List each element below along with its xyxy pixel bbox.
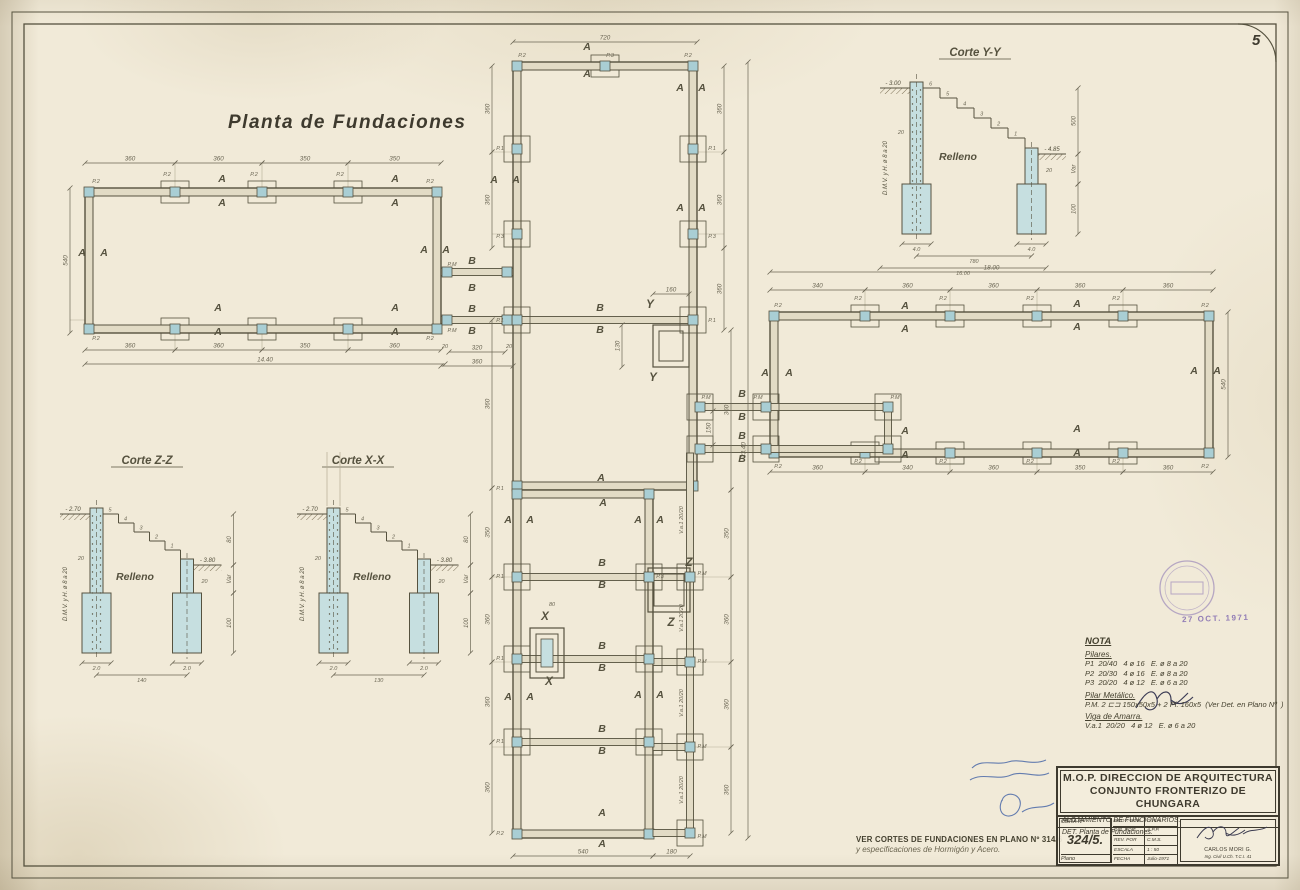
svg-text:360: 360 [724, 699, 731, 710]
svg-text:1: 1 [407, 544, 410, 550]
svg-text:B: B [468, 325, 476, 337]
credit-value: C.M.S. [1145, 838, 1177, 843]
svg-text:A: A [582, 68, 591, 80]
svg-text:4: 4 [124, 517, 127, 523]
svg-text:P.2: P.2 [426, 179, 434, 185]
svg-text:360: 360 [724, 404, 731, 415]
svg-text:P.2: P.2 [496, 831, 504, 837]
signer-title: Ing. Civil U.Ch. T.C.I. 41 [1181, 854, 1275, 859]
svg-text:160: 160 [666, 287, 677, 294]
svg-text:D.M.V. y H. ø 8 a 20: D.M.V. y H. ø 8 a 20 [883, 140, 889, 195]
svg-text:360: 360 [988, 465, 999, 472]
title-block-project: CONJUNTO FRONTERIZO DE CHUNGARA [1061, 785, 1275, 811]
signature-icon [1193, 822, 1273, 844]
svg-text:20: 20 [200, 579, 208, 585]
svg-text:1: 1 [170, 544, 173, 550]
svg-text:20: 20 [505, 344, 513, 350]
svg-text:P.M: P.M [701, 395, 710, 401]
obra-label: OBRA Nº [1061, 819, 1084, 825]
credit-value: Julio-1971 [1145, 857, 1177, 862]
svg-text:P.2: P.2 [939, 296, 947, 302]
svg-text:Y: Y [649, 372, 658, 384]
svg-text:360: 360 [1163, 465, 1174, 472]
svg-text:350: 350 [724, 528, 731, 539]
svg-text:P.M: P.M [697, 834, 706, 840]
svg-text:16.00: 16.00 [956, 271, 971, 277]
svg-text:360: 360 [485, 398, 492, 409]
svg-text:- 3.80: - 3.80 [437, 558, 453, 564]
credit-row: PROY. PORG.R.R. [1113, 817, 1177, 827]
svg-text:A: A [900, 323, 909, 335]
svg-text:P.M: P.M [753, 395, 762, 401]
svg-text:A: A [489, 174, 498, 186]
credit-row: DIB. PORA.P.P. [1113, 827, 1177, 837]
svg-text:350: 350 [300, 343, 311, 350]
svg-text:A: A [697, 82, 706, 94]
svg-text:20: 20 [897, 130, 905, 136]
svg-text:350: 350 [1075, 465, 1086, 472]
nota-group-title: Pilares. [1085, 650, 1295, 659]
credit-value: 1 : 50 [1145, 848, 1177, 853]
svg-text:P.2: P.2 [92, 179, 100, 185]
svg-text:360: 360 [125, 343, 136, 350]
svg-text:3: 3 [139, 526, 143, 532]
svg-text:P.1: P.1 [496, 739, 504, 745]
svg-text:P.3: P.3 [496, 234, 504, 240]
svg-text:V.a.1 20/20: V.a.1 20/20 [679, 775, 685, 804]
svg-text:14.40: 14.40 [257, 357, 273, 364]
svg-text:2: 2 [154, 535, 158, 541]
svg-text:A: A [784, 367, 793, 379]
svg-text:3: 3 [980, 112, 984, 118]
svg-text:360: 360 [1075, 283, 1086, 290]
svg-text:P.2: P.2 [774, 464, 782, 470]
svg-text:360: 360 [1163, 283, 1174, 290]
svg-text:B: B [598, 662, 606, 674]
svg-text:P.2: P.2 [684, 53, 692, 59]
svg-text:A: A [217, 173, 226, 185]
svg-text:P.M: P.M [697, 659, 706, 665]
credit-row: FECHAJulio-1971 [1113, 855, 1177, 864]
svg-text:360: 360 [717, 103, 724, 114]
svg-text:A: A [1072, 447, 1081, 459]
svg-text:A: A [390, 173, 399, 185]
svg-text:2.0: 2.0 [92, 666, 102, 672]
svg-text:A: A [99, 247, 108, 259]
svg-text:A: A [503, 514, 512, 526]
svg-text:P.M: P.M [447, 262, 456, 268]
svg-text:A: A [390, 302, 399, 314]
svg-text:Z: Z [666, 617, 675, 629]
title-block-org: M.O.P. DIRECCION DE ARQUITECTURA [1061, 772, 1275, 785]
credit-row: ESCALA1 : 50 [1113, 846, 1177, 856]
svg-text:360: 360 [485, 614, 492, 625]
svg-text:360: 360 [717, 283, 724, 294]
svg-text:2.0: 2.0 [419, 666, 429, 672]
svg-text:A: A [900, 425, 909, 437]
svg-text:150: 150 [706, 422, 713, 433]
svg-text:B: B [738, 388, 746, 400]
nota-line: P3 20/20 4 ø 12 E. ø 6 a 20 [1085, 678, 1295, 688]
footer-note-line2: y especificaciones de Hormigón y Acero. [856, 845, 1066, 854]
svg-text:B: B [596, 324, 604, 336]
svg-text:B: B [738, 430, 746, 442]
nota-group-title: Viga de Amarra. [1085, 712, 1295, 721]
svg-text:A: A [1072, 321, 1081, 333]
svg-text:2: 2 [996, 122, 1000, 128]
svg-text:B: B [468, 255, 476, 267]
svg-text:Z: Z [684, 557, 693, 569]
svg-text:A: A [390, 326, 399, 338]
svg-text:A: A [900, 300, 909, 312]
svg-text:P.1: P.1 [496, 656, 504, 662]
svg-text:A: A [419, 244, 428, 256]
svg-text:130: 130 [374, 678, 384, 684]
svg-text:360: 360 [125, 156, 136, 163]
svg-text:Var: Var [464, 573, 470, 583]
svg-text:P.M: P.M [890, 395, 899, 401]
svg-text:A: A [1212, 365, 1221, 377]
svg-text:80: 80 [549, 602, 556, 608]
svg-text:P.2: P.2 [163, 172, 171, 178]
svg-text:P.2: P.2 [336, 172, 344, 178]
svg-text:360: 360 [213, 343, 224, 350]
svg-text:340: 340 [902, 465, 913, 472]
svg-text:360: 360 [988, 283, 999, 290]
obra-number: 324/5. [1059, 832, 1111, 847]
svg-text:P.2: P.2 [1201, 303, 1209, 309]
svg-text:- 2.70: - 2.70 [302, 507, 318, 513]
svg-text:350: 350 [389, 156, 400, 163]
svg-text:360: 360 [812, 465, 823, 472]
svg-text:A: A [1072, 298, 1081, 310]
svg-text:340: 340 [812, 283, 823, 290]
svg-text:P.2: P.2 [92, 336, 100, 342]
svg-text:180: 180 [666, 849, 677, 856]
svg-text:Relleno: Relleno [353, 571, 392, 583]
svg-text:P.1: P.1 [708, 318, 716, 324]
svg-text:Relleno: Relleno [939, 151, 978, 163]
svg-text:A: A [441, 244, 450, 256]
svg-text:- 4.85: - 4.85 [1044, 147, 1060, 153]
svg-text:540: 540 [578, 849, 589, 856]
svg-text:P.2: P.2 [426, 336, 434, 342]
svg-text:2.0: 2.0 [182, 666, 192, 672]
svg-text:540: 540 [63, 255, 70, 266]
svg-text:A: A [598, 497, 607, 509]
svg-text:P.2: P.2 [518, 53, 526, 59]
svg-text:2.0: 2.0 [329, 666, 339, 672]
svg-text:B: B [598, 640, 606, 652]
svg-text:360: 360 [485, 696, 492, 707]
svg-text:P.3: P.3 [606, 53, 614, 59]
credit-label: FECHA [1113, 855, 1145, 864]
svg-text:5: 5 [946, 92, 950, 98]
credit-value: G.R.R. [1145, 819, 1177, 824]
svg-text:360: 360 [213, 156, 224, 163]
svg-text:P.2: P.2 [1201, 464, 1209, 470]
svg-text:360: 360 [485, 782, 492, 793]
svg-text:B: B [596, 302, 604, 314]
svg-text:100: 100 [1072, 203, 1078, 214]
svg-text:V.a.1 20/20: V.a.1 20/20 [679, 505, 685, 534]
svg-text:360: 360 [485, 103, 492, 114]
svg-text:A: A [1072, 423, 1081, 435]
nota-group-title: Pilar Metálico. [1085, 691, 1295, 700]
svg-text:P.1: P.1 [708, 146, 716, 152]
svg-text:360: 360 [724, 784, 731, 795]
svg-text:320: 320 [472, 345, 483, 352]
svg-text:100: 100 [227, 617, 233, 628]
svg-text:Y: Y [646, 299, 655, 311]
svg-text:360: 360 [485, 194, 492, 205]
svg-text:A: A [633, 514, 642, 526]
title-block-header: M.O.P. DIRECCION DE ARQUITECTURA CONJUNT… [1060, 770, 1276, 813]
nota-heading: NOTA [1085, 636, 1295, 647]
svg-text:Corte Y-Y: Corte Y-Y [949, 47, 1002, 59]
svg-text:P.2: P.2 [854, 459, 862, 465]
plan-drawing: 36036035035036036035036014.4054032036072… [0, 0, 1300, 890]
svg-text:D.M.V. y H. ø 8 a 20: D.M.V. y H. ø 8 a 20 [63, 566, 69, 621]
svg-text:A: A [582, 41, 591, 53]
svg-text:P.3: P.3 [708, 234, 716, 240]
drawing-sheet: 36036035035036036035036014.4054032036072… [0, 0, 1300, 890]
svg-text:2: 2 [391, 535, 395, 541]
svg-text:360: 360 [724, 614, 731, 625]
svg-text:4.0: 4.0 [1028, 247, 1037, 253]
credit-row: REV. PORC.M.S. [1113, 836, 1177, 846]
signature-cell: CARLOS MORI G. Ing. Civil U.Ch. T.C.I. 4… [1180, 819, 1276, 862]
svg-text:P.2: P.2 [250, 172, 258, 178]
svg-text:B: B [598, 579, 606, 591]
svg-text:B: B [598, 745, 606, 757]
signer-name: CARLOS MORI G. [1181, 847, 1275, 853]
svg-text:B: B [738, 411, 746, 423]
svg-text:720: 720 [600, 35, 611, 42]
svg-text:B: B [598, 557, 606, 569]
svg-text:P.M: P.M [697, 744, 706, 750]
svg-text:20: 20 [1045, 168, 1053, 174]
svg-text:A: A [760, 367, 769, 379]
svg-text:A: A [503, 691, 512, 703]
svg-text:A: A [213, 326, 222, 338]
svg-text:A: A [217, 197, 226, 209]
svg-text:P.M: P.M [447, 328, 456, 334]
svg-text:5: 5 [108, 508, 112, 514]
svg-text:P.1: P.1 [496, 318, 504, 324]
svg-text:360: 360 [717, 194, 724, 205]
nota-line: P2 20/30 4 ø 16 E. ø 8 a 20 [1085, 669, 1295, 679]
svg-text:A: A [525, 514, 534, 526]
credit-label: DIB. POR [1113, 827, 1145, 836]
svg-text:A: A [597, 838, 606, 850]
svg-text:80: 80 [227, 536, 233, 543]
svg-text:- 3.80: - 3.80 [200, 558, 216, 564]
svg-text:P.3: P.3 [656, 574, 664, 580]
title-block-table: OBRA Nº 324/5. Plano PROY. PORG.R.R.DIB.… [1058, 816, 1278, 864]
svg-text:B: B [468, 282, 476, 294]
nota-line: V.a.1 20/20 4 ø 12 E. ø 6 a 20 [1085, 721, 1295, 731]
svg-text:Var: Var [227, 573, 233, 583]
svg-text:500: 500 [1072, 115, 1078, 126]
svg-text:20: 20 [437, 579, 445, 585]
svg-text:A: A [596, 472, 605, 484]
obra-cell: OBRA Nº 324/5. Plano [1059, 818, 1112, 863]
svg-text:A: A [655, 514, 664, 526]
svg-text:A: A [77, 247, 86, 259]
svg-text:1: 1 [1014, 132, 1017, 138]
svg-text:100: 100 [464, 617, 470, 628]
nota-block: NOTAPilares.P1 20/40 4 ø 16 E. ø 8 a 20P… [1085, 636, 1295, 731]
svg-text:Var: Var [1072, 163, 1078, 173]
nota-line: P1 20/40 4 ø 16 E. ø 8 a 20 [1085, 659, 1295, 669]
svg-text:3: 3 [376, 526, 380, 532]
svg-text:A: A [213, 302, 222, 314]
svg-text:V.a.1 20/20: V.a.1 20/20 [679, 603, 685, 632]
svg-text:P.2: P.2 [1026, 296, 1034, 302]
svg-text:360: 360 [472, 359, 483, 366]
svg-text:360: 360 [389, 343, 400, 350]
svg-text:540: 540 [1221, 379, 1228, 390]
svg-text:130: 130 [615, 340, 622, 351]
svg-text:D.M.V. y H. ø 8 a 20: D.M.V. y H. ø 8 a 20 [300, 566, 306, 621]
sheet-number: 5 [1252, 32, 1260, 49]
credit-label: ESCALA [1113, 846, 1145, 855]
title-block: M.O.P. DIRECCION DE ARQUITECTURA CONJUNT… [1056, 766, 1280, 866]
svg-text:780: 780 [969, 259, 979, 265]
svg-text:X: X [544, 676, 554, 688]
svg-text:A: A [633, 689, 642, 701]
svg-text:P.1: P.1 [496, 574, 504, 580]
svg-text:P.2: P.2 [1026, 459, 1034, 465]
svg-text:A: A [1189, 365, 1198, 377]
svg-text:5: 5 [345, 508, 349, 514]
svg-text:A: A [511, 174, 520, 186]
svg-text:350: 350 [300, 156, 311, 163]
svg-text:A: A [597, 807, 606, 819]
svg-text:B: B [468, 303, 476, 315]
svg-text:A: A [675, 82, 684, 94]
svg-text:20: 20 [441, 344, 449, 350]
svg-text:P.2: P.2 [1112, 296, 1120, 302]
plano-label: Plano [1061, 854, 1111, 862]
svg-text:4: 4 [361, 517, 364, 523]
nota-line: P.M. 2 ⊏⊐ 150x50x5 + 2 Pl. 160x5 (Ver De… [1085, 700, 1295, 710]
svg-text:P.M: P.M [697, 571, 706, 577]
svg-text:20: 20 [314, 556, 322, 562]
svg-text:4.0: 4.0 [913, 247, 922, 253]
footer-note: VER CORTES DE FUNDACIONES EN PLANO Nº 31… [856, 835, 1066, 854]
svg-text:A: A [525, 691, 534, 703]
svg-text:B: B [738, 453, 746, 465]
svg-text:20: 20 [77, 556, 85, 562]
svg-text:A: A [675, 202, 684, 214]
svg-text:80: 80 [464, 536, 470, 543]
svg-text:A: A [390, 197, 399, 209]
svg-text:P.2: P.2 [854, 296, 862, 302]
footer-note-line1: VER CORTES DE FUNDACIONES EN PLANO Nº 31… [856, 835, 1066, 844]
svg-text:B: B [598, 723, 606, 735]
svg-text:V.a.1 20/20: V.a.1 20/20 [679, 688, 685, 717]
credits-rows: PROY. PORG.R.R.DIB. PORA.P.P.REV. PORC.M… [1113, 817, 1178, 864]
svg-text:6: 6 [929, 82, 933, 88]
svg-text:- 2.70: - 2.70 [65, 507, 81, 513]
credit-value: A.P.P. [1145, 828, 1177, 833]
svg-text:X: X [540, 611, 550, 623]
svg-text:A: A [655, 689, 664, 701]
credit-label: PROY. POR [1113, 817, 1145, 826]
svg-text:P.1: P.1 [496, 146, 504, 152]
svg-text:140: 140 [137, 678, 147, 684]
svg-text:- 3.00: - 3.00 [885, 81, 901, 87]
svg-text:4: 4 [963, 102, 966, 108]
svg-text:Relleno: Relleno [116, 571, 155, 583]
svg-text:A: A [900, 449, 909, 461]
svg-text:350: 350 [485, 527, 492, 538]
svg-text:P.2: P.2 [1112, 459, 1120, 465]
svg-text:P.2: P.2 [774, 303, 782, 309]
credit-label: REV. POR [1113, 836, 1145, 845]
svg-text:A: A [697, 202, 706, 214]
svg-text:360: 360 [902, 283, 913, 290]
svg-text:Corte Z-Z: Corte Z-Z [121, 455, 173, 467]
page-title: Planta de Fundaciones [228, 112, 466, 134]
svg-text:P.1: P.1 [496, 486, 504, 492]
svg-text:P.2: P.2 [939, 459, 947, 465]
